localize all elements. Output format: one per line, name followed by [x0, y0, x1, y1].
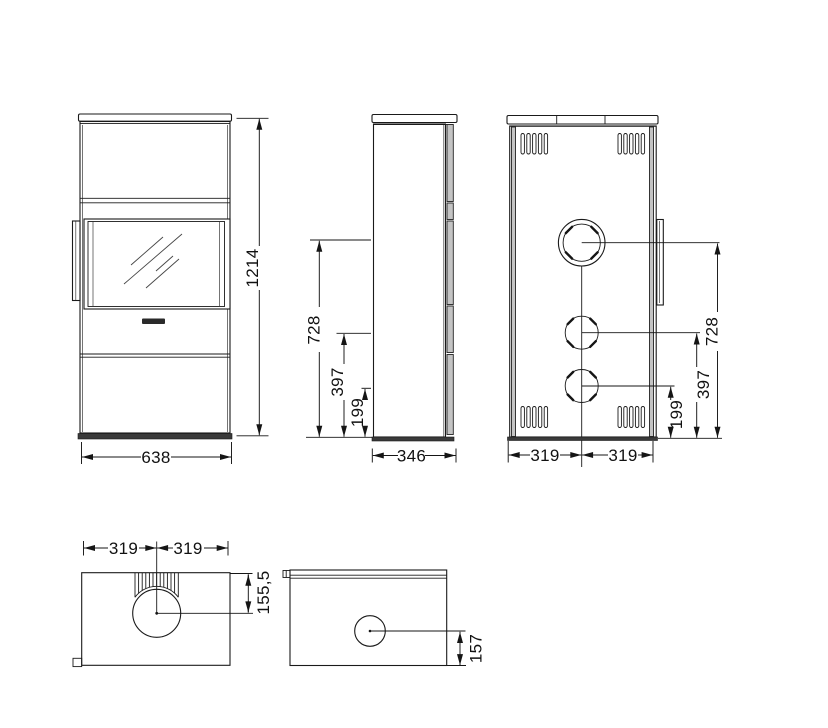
dim-top-width: 319 319 — [84, 539, 229, 558]
top-view-notch — [73, 658, 82, 666]
side-view: 728 397 199 346 — [305, 115, 458, 466]
back-view: 728 397 199 319 319 — [507, 116, 722, 468]
dim-bottom-offset: 157 — [447, 632, 486, 666]
dim-back-728-label: 728 — [703, 317, 722, 346]
top-plate-side — [372, 115, 457, 123]
dim-back-width-left-label: 319 — [530, 446, 559, 465]
stove-body-side — [374, 124, 446, 437]
dim-back-199-label: 199 — [667, 400, 686, 429]
dim-back-width-right-label: 319 — [608, 446, 637, 465]
side-rail — [447, 125, 453, 435]
dim-back-397: 397 — [694, 334, 713, 438]
top-view: 319 319 155,5 — [73, 539, 273, 667]
dim-back-width: 319 319 — [508, 441, 653, 465]
dim-front-height-label: 1214 — [243, 248, 262, 287]
dim-bottom-offset-label: 157 — [467, 634, 486, 663]
dim-side-397-label: 397 — [328, 367, 347, 396]
technical-drawing-page: 638 1214 7 — [0, 0, 828, 728]
dim-back-397-label: 397 — [694, 370, 713, 399]
dim-side-199: 199 — [348, 389, 367, 437]
dim-side-depth-label: 346 — [397, 447, 426, 466]
dim-side-728-label: 728 — [305, 315, 324, 344]
dim-top-width-left-label: 319 — [109, 539, 138, 558]
brand-logo — [142, 319, 165, 325]
dim-top-offset: 155,5 — [230, 570, 273, 614]
dim-top-width-right-label: 319 — [173, 539, 202, 558]
dim-back-199: 199 — [667, 387, 686, 438]
dim-top-offset-label: 155,5 — [254, 570, 273, 614]
door-frame — [84, 219, 230, 309]
dim-side-depth: 346 — [372, 447, 456, 466]
base-plinth-side — [372, 437, 454, 441]
bottom-view: 157 — [283, 570, 486, 666]
dim-side-199-label: 199 — [348, 398, 367, 427]
door-handle-front — [73, 221, 81, 301]
base-plinth-back — [508, 437, 658, 441]
dim-front-width-label: 638 — [141, 448, 170, 467]
front-view: 638 1214 — [73, 114, 269, 467]
top-plate — [79, 114, 232, 121]
dim-front-height: 1214 — [237, 118, 269, 436]
stove-dimension-drawing: 638 1214 7 — [0, 0, 828, 728]
dim-front-width: 638 — [82, 442, 232, 467]
door-handle-back — [657, 220, 664, 306]
dim-side-728: 728 — [305, 241, 324, 437]
stove-body-back — [510, 126, 657, 437]
top-plate-back — [507, 116, 658, 125]
dim-back-728: 728 — [703, 244, 722, 438]
base-plinth-front — [78, 434, 232, 440]
dim-side-397: 397 — [328, 334, 347, 437]
